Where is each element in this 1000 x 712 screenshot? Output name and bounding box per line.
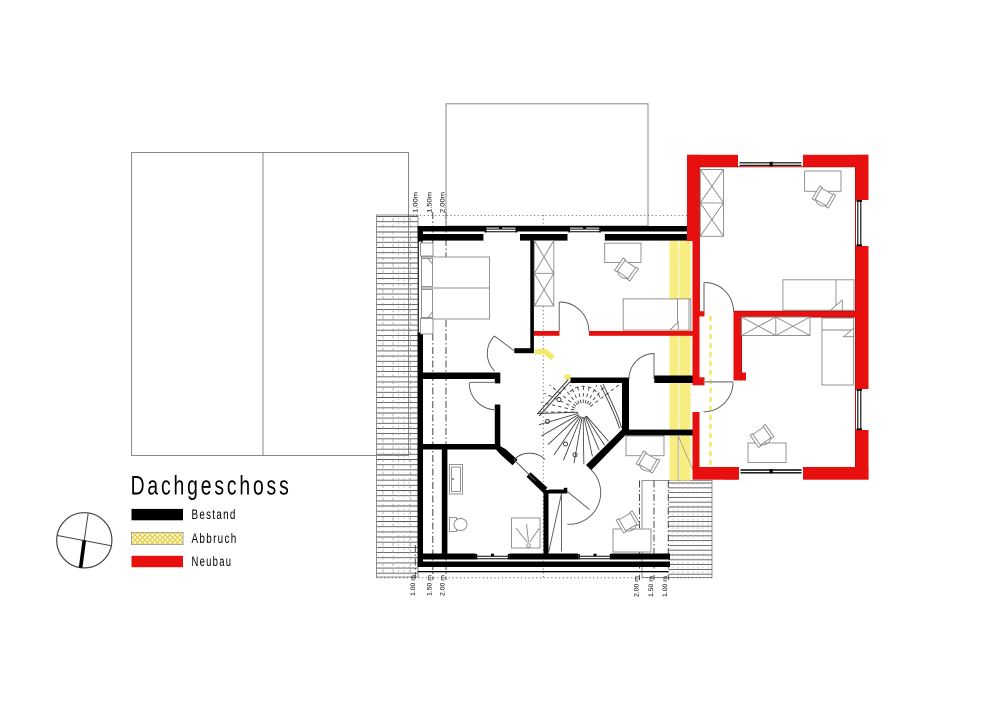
svg-text:Dachgeschoss: Dachgeschoss [131,471,292,501]
svg-text:1.00m: 1.00m [412,192,419,213]
svg-text:Bestand: Bestand [192,507,237,522]
svg-text:Neubau: Neubau [192,554,233,569]
svg-text:2.00 m: 2.00 m [633,576,640,597]
svg-text:1.50 m: 1.50 m [648,576,655,597]
svg-text:1.00 m: 1.00 m [662,576,669,597]
svg-text:1.50 m: 1.50 m [426,575,433,596]
svg-text:2.00m: 2.00m [440,192,447,213]
svg-text:2.00 m: 2.00 m [440,575,447,596]
svg-text:1.50m: 1.50m [426,192,433,213]
svg-text:1.00 m: 1.00 m [410,575,417,596]
svg-text:Abbruch: Abbruch [192,531,238,546]
